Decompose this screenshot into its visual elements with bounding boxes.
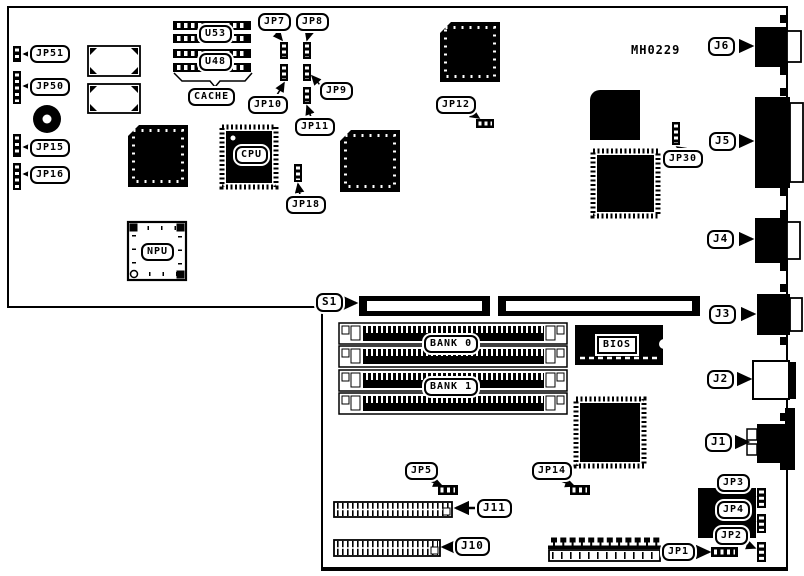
jumper-jp50 <box>13 71 21 104</box>
label-jp8: JP8 <box>296 13 329 31</box>
label-j4: J4 <box>707 230 734 249</box>
jumper-jp5 <box>438 485 458 495</box>
qfp-chip-right <box>593 151 658 216</box>
label-j5: J5 <box>709 132 736 151</box>
label-j11: J11 <box>477 499 512 518</box>
label-jp51: JP51 <box>30 45 70 63</box>
jumper-jp9 <box>303 64 311 81</box>
jumper-jp7 <box>280 42 288 59</box>
oscillator-2 <box>88 84 140 113</box>
qfp-chip-top-right <box>440 22 500 82</box>
jumper-jp12 <box>476 119 494 128</box>
jumper-jp14 <box>570 485 590 495</box>
label-jp15: JP15 <box>30 139 70 157</box>
label-jp7: JP7 <box>258 13 291 31</box>
motherboard-diagram: JP51 JP50 JP15 JP16 U53 U48 CACHE JP7 JP… <box>0 0 804 576</box>
label-bios: BIOS <box>597 336 637 354</box>
qfp-chip-mid <box>340 130 400 192</box>
j4-connector <box>755 218 800 263</box>
label-u53: U53 <box>199 25 232 43</box>
label-j2: J2 <box>707 370 734 389</box>
oscillator-1 <box>88 46 140 76</box>
label-bank0: BANK 0 <box>424 335 478 353</box>
jumper-jp11 <box>303 87 311 104</box>
j3-connector <box>757 294 802 335</box>
label-npu: NPU <box>141 243 174 261</box>
label-jp2: JP2 <box>715 527 748 545</box>
label-jp30: JP30 <box>663 150 703 168</box>
label-jp16: JP16 <box>30 166 70 184</box>
board-graphics <box>0 0 804 576</box>
label-cpu: CPU <box>235 146 268 164</box>
jumper-jp1 <box>711 547 738 557</box>
j2-connector <box>753 361 796 399</box>
jumper-jp51 <box>13 46 21 62</box>
label-bank1: BANK 1 <box>424 378 478 396</box>
label-jp14: JP14 <box>532 462 572 480</box>
slot-s1 <box>359 296 700 316</box>
label-s1: S1 <box>316 293 343 312</box>
j11-header <box>334 502 452 517</box>
jumper-jp8 <box>303 42 311 59</box>
jumper-jp15 <box>13 134 21 157</box>
label-j6: J6 <box>708 37 735 56</box>
jumper-jp16 <box>13 163 21 190</box>
label-cache: CACHE <box>188 88 235 106</box>
jumper-jp30 <box>672 122 680 145</box>
label-jp1: JP1 <box>662 543 695 561</box>
label-u48: U48 <box>199 53 232 71</box>
j6-connector <box>755 27 801 67</box>
jumper-jp4 <box>757 514 766 533</box>
jumper-jp10 <box>280 64 288 81</box>
qfp-chip-upper-left <box>128 125 188 187</box>
simm-socket-bank1-row2 <box>339 393 567 414</box>
label-jp50: JP50 <box>30 78 70 96</box>
label-j3: J3 <box>709 305 736 324</box>
j5-connector <box>755 97 803 188</box>
jumper-jp18 <box>294 164 302 182</box>
label-jp12: JP12 <box>436 96 476 114</box>
board-marking: MH0229 <box>631 43 680 57</box>
label-jp10: JP10 <box>248 96 288 114</box>
label-j10: J10 <box>455 537 490 556</box>
jumper-jp3 <box>757 488 766 508</box>
label-jp11: JP11 <box>295 118 335 136</box>
label-jp5: JP5 <box>405 462 438 480</box>
label-jp18: JP18 <box>286 196 326 214</box>
label-jp3: JP3 <box>717 474 750 492</box>
j10-header <box>334 540 440 556</box>
speaker-donut <box>33 105 61 133</box>
plcc-chip-right <box>590 90 640 140</box>
label-jp4: JP4 <box>717 501 750 519</box>
label-jp9: JP9 <box>320 82 353 100</box>
qfp-chip-lower <box>576 399 644 466</box>
jumper-jp2 <box>757 542 766 562</box>
label-j1: J1 <box>705 433 732 452</box>
